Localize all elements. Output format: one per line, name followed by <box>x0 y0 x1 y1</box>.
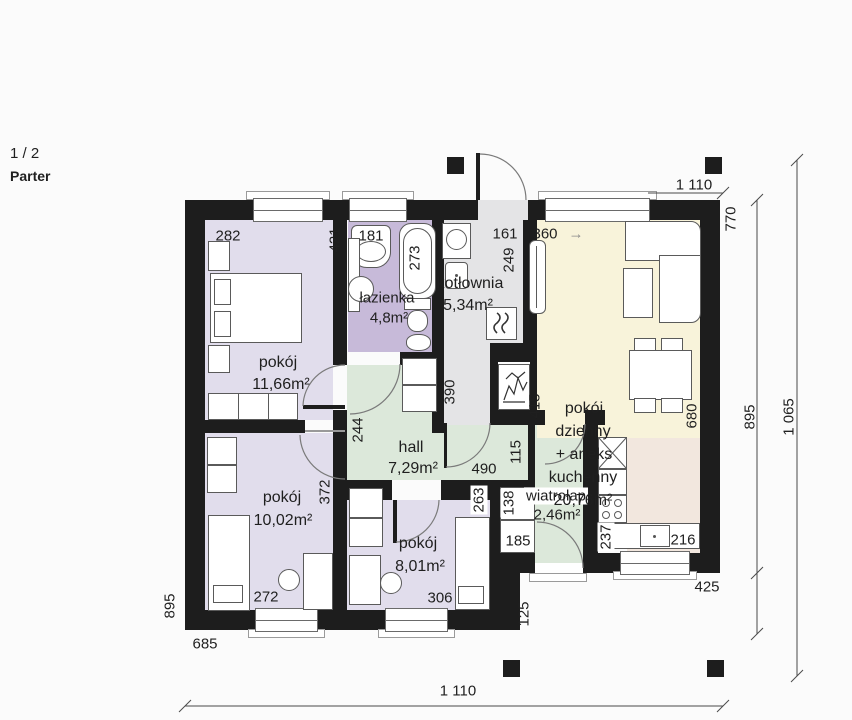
dim-390: 390 <box>442 379 459 404</box>
wardrobe <box>207 465 237 493</box>
wall-fireplace-left <box>490 362 498 412</box>
floor-name: Parter <box>10 168 50 184</box>
dim-415: 415 <box>527 393 544 418</box>
desk <box>303 553 333 610</box>
wardrobe <box>208 393 298 420</box>
dim-490: 490 <box>471 461 496 478</box>
bedroom3-area: 8,01m² <box>395 558 445 576</box>
living-label-line4: kuchenny <box>549 469 618 487</box>
pillow <box>458 586 484 604</box>
dim-372: 372 <box>317 479 334 504</box>
dim-282: 282 <box>215 228 240 245</box>
dim-895-right: 895 <box>742 404 759 429</box>
sofa <box>659 255 701 323</box>
dim-1110-top: 1 110 <box>676 177 712 194</box>
chair <box>661 398 683 413</box>
chair <box>634 398 656 413</box>
window <box>385 608 448 632</box>
dim-685: 685 <box>192 636 217 653</box>
burner <box>602 511 610 519</box>
boiler-room-area: 5,34m² <box>443 297 493 315</box>
wardrobe-divider <box>268 394 269 419</box>
bedroom2-label: pokój <box>263 489 301 507</box>
bathroom-area: 4,8m² <box>370 310 408 327</box>
dim-360: 360 <box>532 226 557 243</box>
entry-step <box>529 573 587 582</box>
radiator <box>529 240 546 314</box>
window <box>545 198 650 222</box>
washing-machine-drum <box>446 229 467 250</box>
dim-161: 161 <box>492 226 517 243</box>
window <box>620 551 690 575</box>
dim-138: 138 <box>501 488 518 517</box>
living-label-line1: pokój <box>565 400 603 418</box>
dim-181: 181 <box>358 228 383 245</box>
hall-area: 7,29m² <box>388 460 438 478</box>
front-door-arc <box>480 154 526 200</box>
wall-mid-vertical-lower <box>333 410 347 610</box>
pillow <box>213 585 243 603</box>
nightstand <box>208 241 230 271</box>
wall-hall-vestibule <box>528 425 535 480</box>
dim-421: 421 <box>327 227 344 252</box>
vestibule-threshold <box>535 563 583 573</box>
burner <box>614 511 622 519</box>
wardrobe <box>349 488 383 518</box>
dim-115: 115 <box>508 440 525 464</box>
dim-249: 249 <box>501 247 518 272</box>
wall-right <box>700 200 720 573</box>
wardrobe <box>207 437 237 465</box>
dim-1110-bottom: 1 110 <box>440 683 476 700</box>
entrance-strip <box>478 200 528 220</box>
pillow <box>214 311 231 337</box>
front-door-leaf <box>476 153 480 200</box>
bedroom1-door-leaf <box>303 405 345 409</box>
bathroom-label: łazienka <box>359 290 414 307</box>
title-block: 1 / 2 Parter <box>10 145 50 184</box>
dim-272: 272 <box>253 589 278 606</box>
fireplace-niche <box>498 364 530 410</box>
page-index: 1 / 2 <box>10 145 50 162</box>
dim-237: 237 <box>598 522 615 551</box>
wall-top <box>528 200 545 220</box>
pillar <box>707 660 724 677</box>
corridor-door-leaf <box>444 423 447 468</box>
window <box>255 608 318 632</box>
dining-table <box>629 350 692 400</box>
coffee-table <box>623 268 653 318</box>
wardrobe-divider <box>238 394 239 419</box>
desk <box>349 555 381 605</box>
wall-top <box>407 200 478 220</box>
wall-kitchen-bottom <box>690 553 720 573</box>
living-area: 20,76m² <box>554 492 613 510</box>
dim-125: 125 <box>516 601 533 626</box>
dim-185: 185 <box>503 533 532 550</box>
wall-top <box>323 200 349 220</box>
arrow-icon: → <box>569 226 584 243</box>
wall-fireplace-top <box>490 343 537 362</box>
dim-273: 273 <box>407 245 424 270</box>
pillow <box>214 279 231 305</box>
dim-263: 263 <box>471 485 488 514</box>
dim-244: 244 <box>350 417 367 442</box>
dim-895-left: 895 <box>162 593 179 618</box>
bedroom3-door-leaf <box>393 500 397 543</box>
wall-bottom-left <box>318 610 385 630</box>
dim-1065: 1 065 <box>781 398 798 436</box>
pillar <box>705 157 722 174</box>
burner <box>614 499 622 507</box>
wall-left <box>185 200 205 630</box>
boiler-room-label: kotłownia <box>437 275 504 293</box>
hall-wardrobe <box>402 385 437 412</box>
bedroom2-area: 10,02m² <box>254 512 313 530</box>
bidet <box>406 334 431 351</box>
sink-drain <box>653 535 656 538</box>
toilet-bowl <box>407 310 428 332</box>
living-label-line2: dzienny <box>555 423 610 441</box>
floor-plan-page: 1 / 2 Parter <box>0 0 852 720</box>
pillar <box>447 157 464 174</box>
pillar <box>503 660 520 677</box>
dim-216: 216 <box>670 532 695 549</box>
wall-bottom-left <box>185 610 255 630</box>
bedroom1-area: 11,66m² <box>252 376 310 394</box>
bedroom2-door-threshold <box>305 430 345 432</box>
stool <box>278 569 300 591</box>
nightstand <box>208 345 230 373</box>
radiator-line <box>536 246 537 308</box>
hall-label: hall <box>399 439 424 457</box>
wall-bedroom1-bottom <box>205 420 305 433</box>
wall-closet-bottom <box>498 553 535 573</box>
dim-425: 425 <box>694 579 719 596</box>
living-label-line3: + aneks <box>556 446 612 464</box>
bedroom1-label: pokój <box>259 354 297 372</box>
hall-wardrobe <box>402 358 437 385</box>
window <box>349 198 407 222</box>
wardrobe <box>349 518 383 547</box>
bedroom3-label: pokój <box>399 535 437 553</box>
dim-770: 770 <box>723 206 740 231</box>
dim-306: 306 <box>427 590 452 607</box>
wall-bottom-left <box>448 610 520 630</box>
dim-680: 680 <box>684 403 701 428</box>
window <box>253 198 323 222</box>
